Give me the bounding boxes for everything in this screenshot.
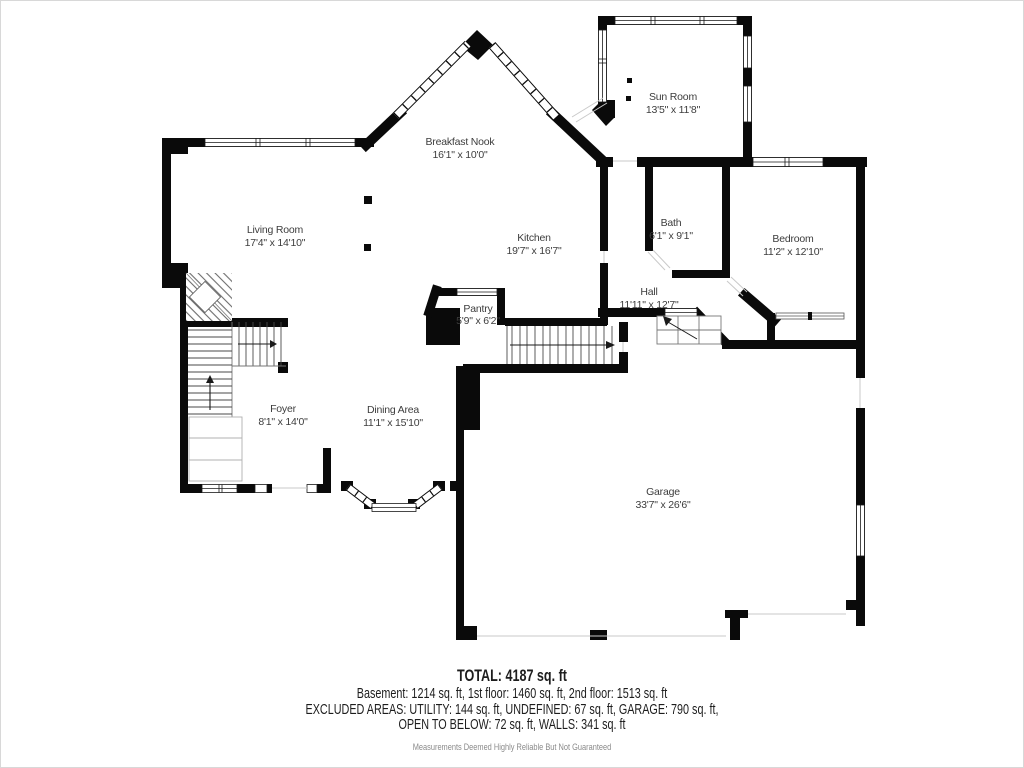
disclaimer: Measurements Deemed Highly Reliable But … (113, 742, 912, 753)
fireplace (186, 273, 232, 321)
excluded-areas-line1: EXCLUDED AREAS: UTILITY: 144 sq. ft, UND… (143, 702, 880, 718)
room-label-sun-room: Sun Room (649, 91, 697, 103)
floor-areas: Basement: 1214 sq. ft, 1st floor: 1460 s… (143, 686, 880, 702)
room-dims-sun-room: 13'5" x 11'8" (646, 104, 701, 116)
room-label-foyer: Foyer (270, 403, 297, 415)
room-dims-living-room: 17'4" x 14'10" (245, 237, 306, 249)
dining-bay-ladder-right (415, 487, 440, 506)
excluded-areas-line2: OPEN TO BELOW: 72 sq. ft, WALLS: 341 sq.… (143, 717, 880, 733)
room-dims-pantry: 5'9" x 6'2" (456, 315, 500, 327)
stairs-main (507, 326, 612, 364)
bay-window-ladder-right (492, 45, 556, 117)
floor-plan-image: Sun Room 13'5" x 11'8" Breakfast Nook 16… (0, 0, 1024, 660)
room-dims-breakfast-nook: 16'1" x 10'0" (433, 149, 488, 161)
floor-plan: Sun Room 13'5" x 11'8" Breakfast Nook 16… (0, 0, 1024, 660)
stairs-foyer-arrow-right (270, 340, 277, 348)
bay-window-ladder-left (396, 44, 468, 116)
room-dims-garage: 33'7" x 26'6" (636, 499, 691, 511)
room-dims-bedroom: 11'2" x 12'10" (763, 246, 823, 258)
stairs-lower-outline (189, 417, 242, 481)
room-dims-foyer: 8'1" x 14'0" (258, 416, 308, 428)
dining-bay-ladder-left (348, 487, 373, 506)
room-dims-kitchen: 19'7" x 16'7" (507, 245, 562, 257)
room-label-bath: Bath (661, 217, 682, 229)
walls (162, 16, 867, 640)
room-label-hall: Hall (640, 286, 657, 298)
room-dims-bath: 6'1" x 9'1" (649, 230, 693, 242)
room-label-pantry: Pantry (463, 303, 493, 315)
room-dims-hall: 11'11" x 12'7" (619, 299, 679, 311)
room-labels: Sun Room 13'5" x 11'8" Breakfast Nook 16… (245, 91, 824, 511)
room-label-kitchen: Kitchen (517, 232, 551, 244)
room-label-dining-area: Dining Area (367, 404, 419, 416)
area-summary: TOTAL: 4187 sq. ft Basement: 1214 sq. ft… (0, 666, 1024, 753)
room-dims-dining-area: 11'1" x 15'10" (363, 417, 423, 429)
room-label-garage: Garage (646, 486, 680, 498)
room-label-living-room: Living Room (247, 224, 304, 236)
room-label-breakfast-nook: Breakfast Nook (426, 136, 496, 148)
total-area: TOTAL: 4187 sq. ft (133, 666, 891, 686)
stairs-main-arrow (606, 341, 615, 349)
room-label-bedroom: Bedroom (772, 233, 814, 245)
